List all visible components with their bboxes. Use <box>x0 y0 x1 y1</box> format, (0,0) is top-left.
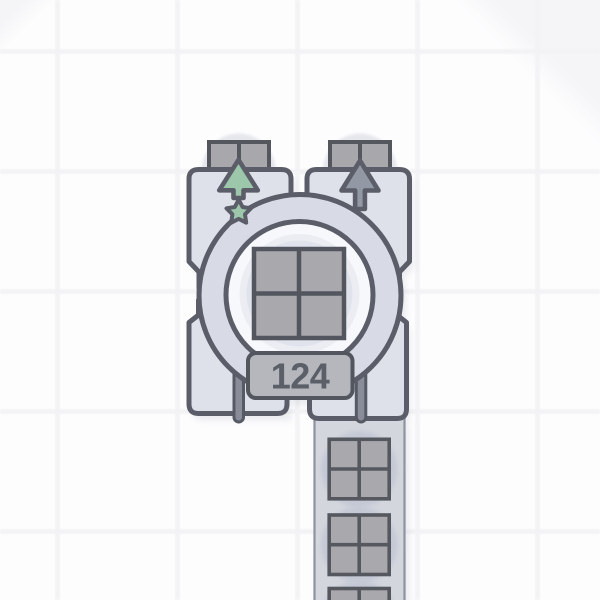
svg-text:124: 124 <box>271 356 330 397</box>
